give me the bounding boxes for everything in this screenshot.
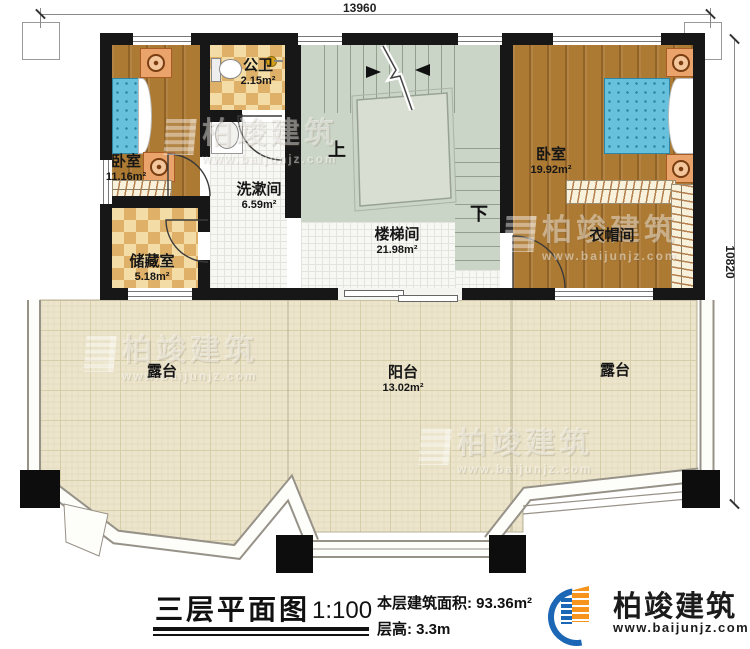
stair-direction-arrow [415, 64, 430, 76]
logo-building-blue [561, 598, 572, 624]
brand-name: 柏竣建筑 [613, 583, 737, 625]
stair-up-label: 上 [328, 136, 346, 162]
room-label-bathroom: 公卫 2.15m² [241, 58, 276, 87]
floor-area-note: 本层建筑面积: 93.36m² [377, 592, 532, 613]
drawing-scale: 1:100 [312, 597, 372, 625]
floor-plan-canvas: 柏竣建筑 www.baijunjz.com 柏竣建筑 www.baijunjz.… [0, 0, 750, 649]
drawing-title: 三层平面图 [155, 588, 310, 628]
dimension-right-value: 10820 [723, 232, 737, 292]
room-label-terrace-left: 露台 [147, 364, 177, 381]
floor-height-note: 层高: 3.3m [377, 618, 450, 639]
room-label-bedroom-left: 卧室 11.16m² [106, 154, 146, 183]
room-label-cloakroom: 衣帽间 [589, 228, 634, 245]
logo-building-orange [572, 586, 589, 622]
stair-void [357, 93, 451, 206]
stair-down-label: 下 [470, 200, 488, 226]
dimension-top-value: 13960 [343, 1, 376, 15]
room-label-stairwell: 楼梯间 21.98m² [374, 227, 419, 256]
title-underline-thick [153, 627, 369, 631]
brand-website: www.baijunjz.com [613, 620, 749, 635]
plan-overlay [0, 0, 750, 649]
stair-direction-arrow [366, 66, 381, 78]
room-label-terrace-right: 露台 [600, 363, 630, 380]
title-underline-thin [153, 634, 369, 636]
room-label-balcony: 阳台 13.02m² [383, 365, 424, 394]
room-label-bedroom-right: 卧室 19.92m² [531, 147, 572, 176]
room-label-storage: 储藏室 5.18m² [129, 254, 174, 283]
room-label-washroom: 洗漱间 6.59m² [236, 182, 281, 211]
